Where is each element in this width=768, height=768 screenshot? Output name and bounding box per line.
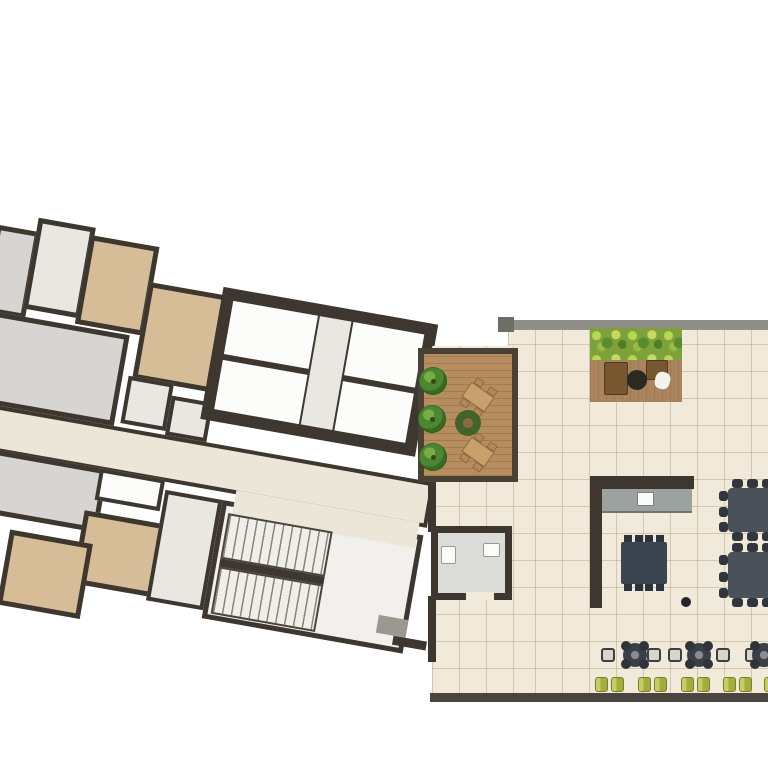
- sun-lounger: [611, 677, 624, 692]
- dining-table: [621, 542, 667, 584]
- sink: [483, 543, 500, 557]
- community-chair: [732, 598, 743, 607]
- dining-chair-stub: [645, 584, 653, 591]
- west-wall-upper: [428, 478, 436, 532]
- floor-dot: [681, 597, 691, 607]
- toilet: [441, 546, 456, 564]
- community-chair: [762, 479, 768, 488]
- community-chair: [762, 532, 768, 541]
- community-chair: [719, 491, 728, 501]
- sun-lounger: [654, 677, 667, 692]
- lounge-round-table: [627, 370, 647, 390]
- cafe-table-seat: [750, 659, 760, 669]
- cafe-chair: [647, 648, 661, 662]
- community-chair: [732, 479, 743, 488]
- community-chair: [762, 598, 768, 607]
- community-chair: [747, 479, 758, 488]
- sun-lounger: [723, 677, 736, 692]
- cafe-table-seat: [621, 641, 631, 651]
- floor-plan-canvas: [0, 0, 768, 768]
- sun-lounger: [764, 677, 768, 692]
- room-tan-lower-2: [0, 530, 93, 619]
- community-chair: [719, 588, 728, 598]
- community-chair: [719, 507, 728, 517]
- community-chair: [732, 543, 743, 552]
- dining-chair-stub: [635, 535, 643, 542]
- kitchen-wall-horizontal: [590, 476, 694, 489]
- community-chair: [719, 572, 728, 582]
- community-chair: [732, 532, 743, 541]
- dining-chair-stub: [656, 535, 664, 542]
- cafe-chair: [601, 648, 615, 662]
- community-chair: [747, 598, 758, 607]
- sun-lounger: [681, 677, 694, 692]
- dining-chair-stub: [645, 535, 653, 542]
- deck-round-table: [455, 410, 481, 436]
- dining-chair-stub: [656, 584, 664, 591]
- dining-chair-stub: [624, 584, 632, 591]
- cafe-table-seat: [703, 641, 713, 651]
- kitchen-wall-vertical: [590, 476, 602, 608]
- cafe-table-seat: [750, 641, 760, 651]
- tree-1: [419, 367, 447, 395]
- sun-lounger: [697, 677, 710, 692]
- community-chair: [747, 532, 758, 541]
- lounge-chair-left: [604, 362, 628, 395]
- north-wall-cap: [498, 317, 514, 332]
- community-table-2: [728, 552, 768, 598]
- dining-chair-stub: [635, 584, 643, 591]
- kitchen-sink: [637, 492, 654, 506]
- south-wall: [430, 693, 768, 702]
- cafe-table-seat: [639, 659, 649, 669]
- cafe-table-seat: [685, 659, 695, 669]
- cafe-table-seat: [703, 659, 713, 669]
- bathroom-door-gap: [466, 592, 494, 600]
- sun-lounger: [739, 677, 752, 692]
- cafe-table-seat: [685, 641, 695, 651]
- community-chair: [719, 522, 728, 532]
- dining-chair-stub: [624, 535, 632, 542]
- tree-2: [418, 405, 446, 433]
- cafe-table-seat: [639, 641, 649, 651]
- cafe-chair: [668, 648, 682, 662]
- west-wall-lower: [428, 596, 436, 662]
- community-chair: [762, 543, 768, 552]
- sun-lounger: [638, 677, 651, 692]
- room-service-1: [120, 376, 174, 431]
- community-table-1: [728, 488, 768, 532]
- community-chair: [747, 543, 758, 552]
- community-chair: [719, 555, 728, 565]
- cafe-chair: [716, 648, 730, 662]
- tree-3: [419, 443, 447, 471]
- sun-lounger: [595, 677, 608, 692]
- cafe-table-seat: [621, 659, 631, 669]
- hedge-planter: [590, 328, 682, 360]
